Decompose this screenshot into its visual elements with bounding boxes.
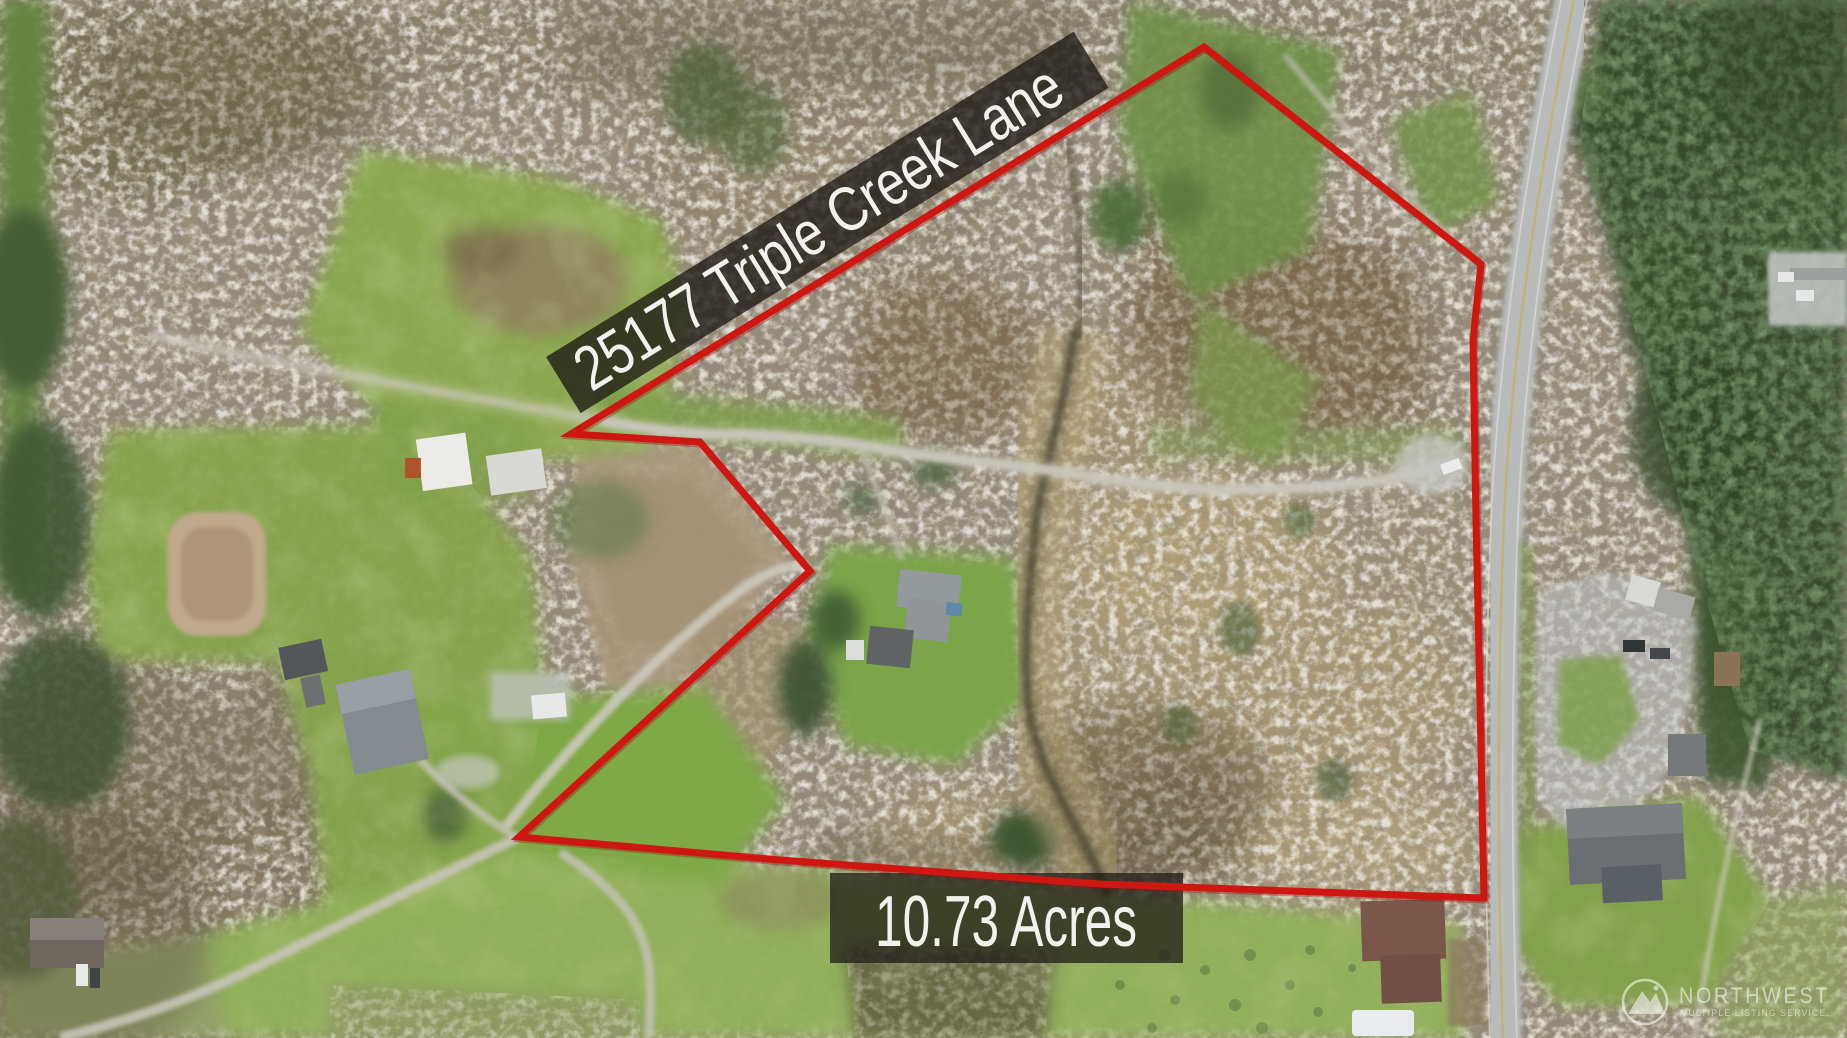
svg-text:10.73 Acres: 10.73 Acres: [875, 882, 1137, 962]
svg-text:MULTIPLE LISTING SERVICE.: MULTIPLE LISTING SERVICE.: [1680, 1008, 1830, 1018]
svg-text:NORTHWEST: NORTHWEST: [1679, 983, 1830, 1008]
